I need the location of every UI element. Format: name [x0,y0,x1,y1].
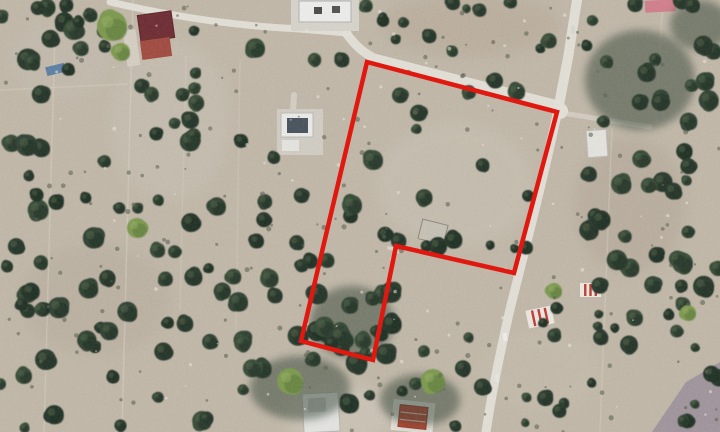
soil-texture-overlay [0,0,720,432]
satellite-imagery [0,0,720,432]
satellite-map-canvas[interactable] [0,0,720,432]
grain-light-overlay [0,0,720,432]
